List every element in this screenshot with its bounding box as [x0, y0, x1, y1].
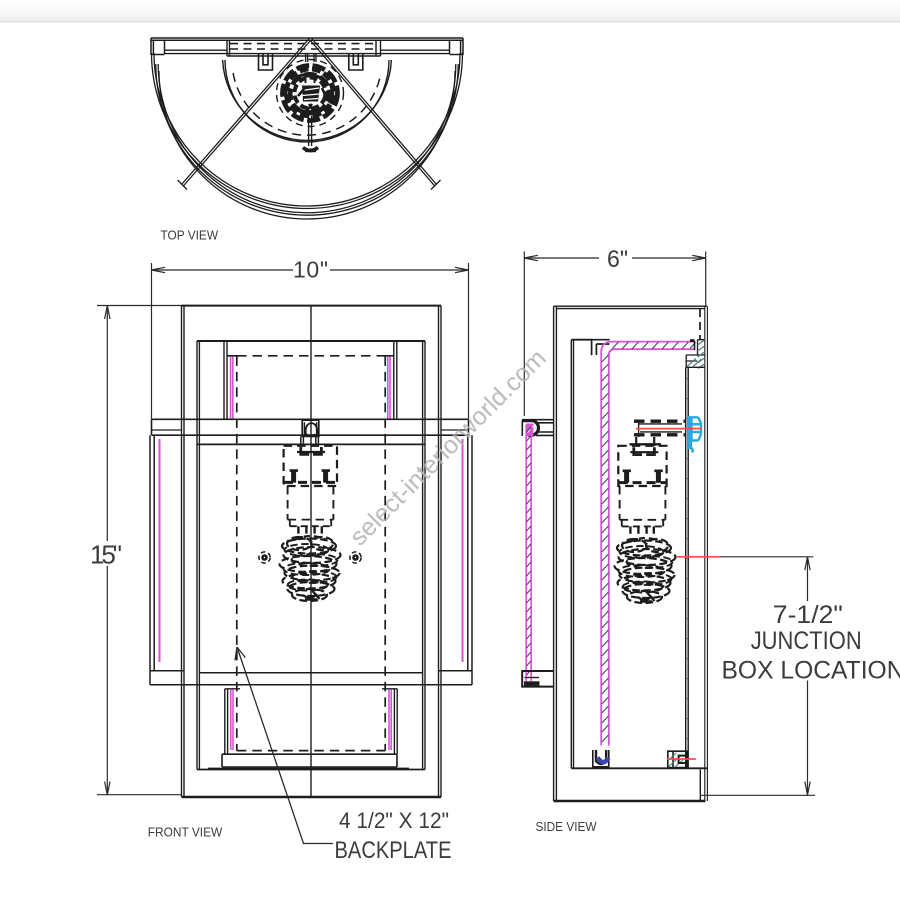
svg-text:4 1/2" X 12": 4 1/2" X 12" [339, 808, 449, 833]
svg-text:6": 6" [607, 246, 628, 273]
svg-text:10": 10" [293, 257, 328, 283]
svg-text:7-1/2": 7-1/2" [773, 601, 843, 629]
svg-text:SIDE VIEW: SIDE VIEW [536, 819, 597, 834]
svg-text:BACKPLATE: BACKPLATE [335, 837, 452, 864]
svg-text:FRONT VIEW: FRONT VIEW [148, 825, 223, 840]
svg-text:BOX LOCATION: BOX LOCATION [722, 657, 900, 685]
svg-text:15": 15" [90, 540, 122, 570]
svg-text:TOP VIEW: TOP VIEW [161, 228, 219, 243]
svg-text:JUNCTION: JUNCTION [751, 627, 862, 655]
